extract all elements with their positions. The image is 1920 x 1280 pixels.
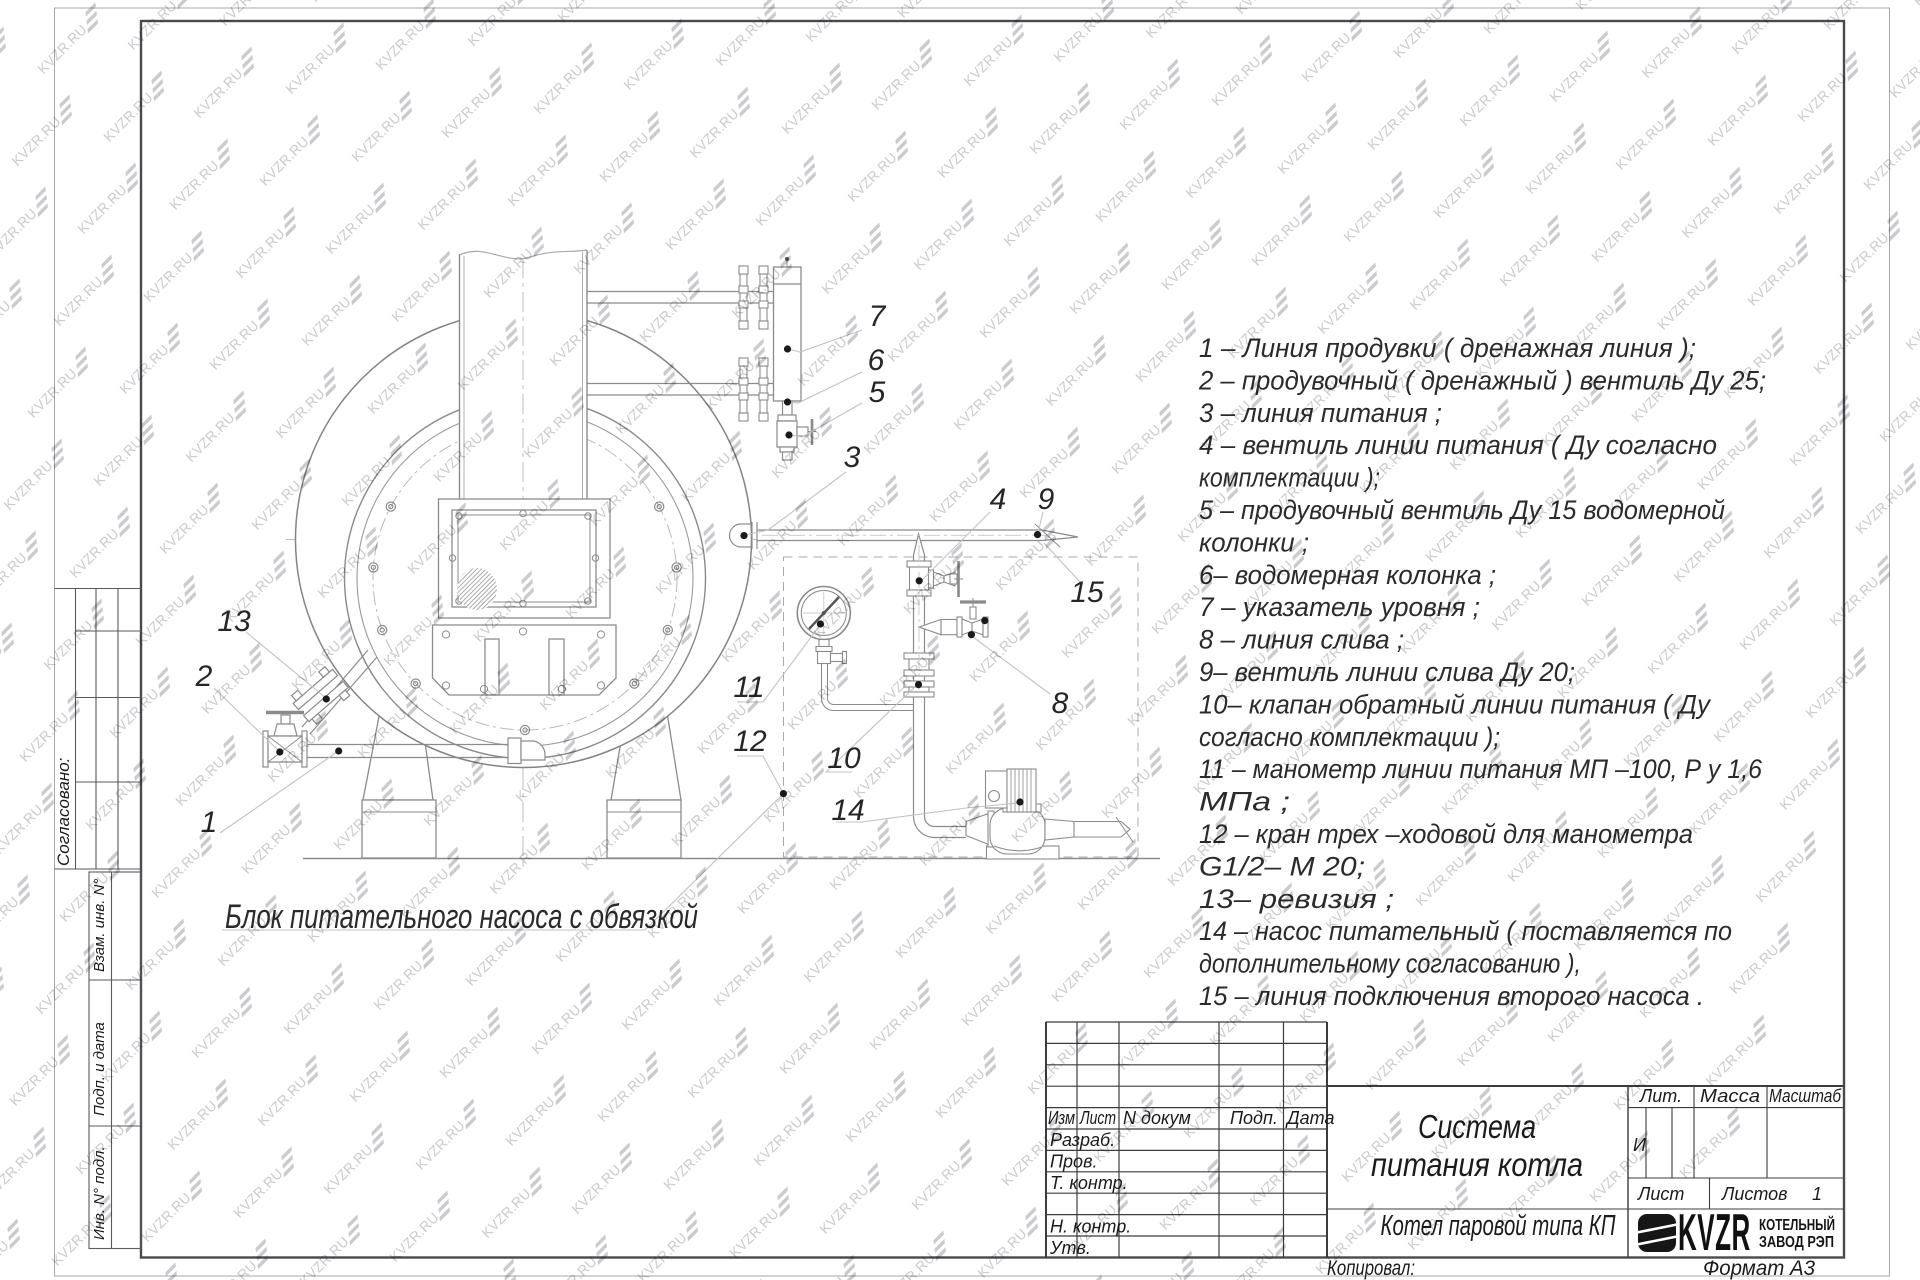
svg-text:KVZR.RU: KVZR.RU: [1902, 297, 1920, 353]
svg-text:KVZR.RU: KVZR.RU: [280, 981, 336, 1037]
svg-text:KVZR.RU: KVZR.RU: [974, 1225, 1030, 1280]
svg-text:Согласовано:: Согласовано:: [54, 757, 73, 866]
svg-text:KVZR.RU: KVZR.RU: [478, 1185, 534, 1241]
svg-text:KVZR.RU: KVZR.RU: [792, 1273, 848, 1280]
svg-text:KVZR.RU: KVZR.RU: [636, 289, 692, 345]
svg-text:KVZR.RU: KVZR.RU: [1158, 237, 1214, 293]
svg-text:KVZR.RU: KVZR.RU: [1082, 513, 1138, 569]
svg-text:KVZR.RU: KVZR.RU: [816, 1181, 872, 1237]
svg-text:KVZR.RU: KVZR.RU: [116, 341, 172, 397]
svg-text:KVZR.RU: KVZR.RU: [882, 1249, 938, 1280]
svg-text:KVZR.RU: KVZR.RU: [1108, 421, 1164, 477]
svg-text:KVZR.RU: KVZR.RU: [504, 153, 560, 209]
svg-text:KVZR.RU: KVZR.RU: [8, 113, 64, 169]
svg-text:KVZR.RU: KVZR.RU: [138, 1189, 194, 1245]
svg-text:KVZR.RU: KVZR.RU: [66, 525, 122, 581]
svg-text:KVZR.RU: KVZR.RU: [1496, 233, 1552, 289]
svg-text:KVZR.RU: KVZR.RU: [0, 0, 24, 9]
svg-text:KVZR.RU: KVZR.RU: [752, 173, 808, 229]
svg-text:KVZR.RU: KVZR.RU: [1760, 505, 1816, 561]
svg-text:KVZR.RU: KVZR.RU: [662, 197, 718, 253]
svg-text:KVZR.RU: KVZR.RU: [190, 65, 246, 121]
svg-text:KVZR.RU: KVZR.RU: [1000, 193, 1056, 249]
svg-text:KVZR.RU: KVZR.RU: [982, 881, 1038, 937]
svg-text:KVZR.RU: KVZR.RU: [412, 1117, 468, 1173]
svg-text:KVZR.RU: KVZR.RU: [926, 469, 982, 525]
svg-text:KVZR.RU: KVZR.RU: [818, 241, 874, 297]
svg-text:KVZR.RU: KVZR.RU: [1810, 321, 1866, 377]
svg-text:KVZR.RU: KVZR.RU: [32, 961, 88, 1017]
svg-text:Копировал:: Копировал:: [1327, 1257, 1415, 1280]
svg-text:KVZR.RU: KVZR.RU: [634, 1229, 690, 1280]
svg-text:KVZR.RU: KVZR.RU: [1572, 0, 1628, 13]
svg-text:KVZR.RU: KVZR.RU: [148, 845, 204, 901]
svg-text:KVZR.RU: KVZR.RU: [172, 753, 228, 809]
svg-text:KVZR.RU: KVZR.RU: [1728, 1, 1784, 57]
svg-text:G1/2– М 20;: G1/2– М 20;: [1199, 851, 1365, 881]
svg-text:Формат А3: Формат А3: [1703, 1257, 1815, 1280]
svg-text:KVZR.RU: KVZR.RU: [1074, 857, 1130, 913]
svg-text:KVZR.RU: KVZR.RU: [206, 317, 262, 373]
svg-text:KVZR.RU: KVZR.RU: [734, 861, 790, 917]
svg-text:8 – линия слива ;: 8 – линия слива ;: [1199, 625, 1404, 655]
svg-text:KVZR.RU: KVZR.RU: [1130, 1269, 1186, 1280]
svg-text:KVZR.RU: KVZR.RU: [800, 929, 856, 985]
svg-text:KVZR.RU: KVZR.RU: [1124, 673, 1180, 729]
svg-text:KVZR.RU: KVZR.RU: [1826, 573, 1882, 629]
svg-text:KVZR.RU: KVZR.RU: [1744, 253, 1800, 309]
svg-text:KVZR.RU: KVZR.RU: [916, 813, 972, 869]
svg-text:KVZR.RU: KVZR.RU: [1638, 25, 1694, 81]
svg-text:KVZR.RU: KVZR.RU: [1390, 5, 1446, 61]
svg-text:питания котла: питания котла: [1371, 1146, 1583, 1183]
svg-text:KVZR.RU: KVZR.RU: [1710, 689, 1766, 745]
svg-text:Масса: Масса: [1700, 1086, 1760, 1106]
svg-text:KVZR.RU: KVZR.RU: [1132, 329, 1188, 385]
svg-text:1 – Линия продувки ( дренажн: 1 – Линия продувки ( дренажная линия );: [1199, 333, 1696, 363]
svg-text:Лист: Лист: [1637, 1184, 1684, 1204]
svg-text:KVZR.RU: KVZR.RU: [282, 41, 338, 97]
svg-text:KVZR.RU: KVZR.RU: [48, 1213, 104, 1269]
svg-text:KVZR.RU: KVZR.RU: [646, 0, 702, 1]
svg-text:KVZR.RU: KVZR.RU: [908, 1157, 964, 1213]
svg-text:KVZR.RU: KVZR.RU: [1794, 69, 1850, 125]
svg-text:KVZR.RU: KVZR.RU: [684, 1045, 740, 1101]
svg-text:Подп.: Подп.: [1230, 1108, 1278, 1128]
svg-text:KVZR.RU: KVZR.RU: [1156, 1177, 1212, 1233]
svg-text:KVZR.RU: KVZR.RU: [1098, 765, 1154, 821]
svg-text:KVZR.RU: KVZR.RU: [1050, 9, 1106, 65]
svg-text:KVZR.RU: KVZR.RU: [1770, 161, 1826, 217]
svg-text:KVZR.RU: KVZR.RU: [0, 893, 22, 949]
svg-text:KVZR.RU: KVZR.RU: [1654, 277, 1710, 333]
svg-text:KVZR.RU: KVZR.RU: [232, 225, 288, 281]
svg-text:ЗАВОД РЭП: ЗАВОД РЭП: [1759, 1234, 1834, 1251]
svg-text:14 – насос питательный ( п: 14 – насос питательный ( поставляется по: [1199, 916, 1732, 946]
svg-text:KVZR.RU: KVZR.RU: [272, 385, 328, 441]
svg-text:KVZR.RU: KVZR.RU: [346, 1049, 402, 1105]
svg-text:Лист: Лист: [1079, 1108, 1116, 1128]
svg-text:KVZR.RU: KVZR.RU: [1364, 97, 1420, 153]
svg-text:KVZR.RU: KVZR.RU: [0, 1237, 12, 1280]
svg-text:KVZR.RU: KVZR.RU: [1736, 597, 1792, 653]
svg-text:KVZR.RU: KVZR.RU: [1140, 925, 1196, 981]
svg-text:KVZR.RU: KVZR.RU: [1820, 0, 1876, 33]
svg-text:KVZR.RU: KVZR.RU: [860, 401, 916, 457]
svg-text:KVZR.RU: KVZR.RU: [1454, 1013, 1510, 1069]
svg-text:KVZR.RU: KVZR.RU: [100, 89, 156, 145]
svg-text:KVZR.RU: KVZR.RU: [1670, 529, 1726, 585]
svg-text:7: 7: [869, 300, 887, 333]
svg-text:15 – линия подключения вто: 15 – линия подключения второго насоса .: [1199, 981, 1704, 1011]
svg-text:KVZR.RU: KVZR.RU: [436, 1025, 492, 1081]
svg-text:KVZR.RU: KVZR.RU: [1362, 1037, 1418, 1093]
svg-text:KVZR.RU: KVZR.RU: [188, 1005, 244, 1061]
svg-text:KVZR.RU: KVZR.RU: [486, 841, 542, 897]
svg-text:KVZR.RU: KVZR.RU: [1852, 481, 1908, 537]
svg-text:6: 6: [868, 344, 885, 377]
svg-text:KVZR.RU: KVZR.RU: [1406, 257, 1462, 313]
svg-text:KVZR.RU: KVZR.RU: [802, 0, 858, 45]
svg-text:KVZR.RU: KVZR.RU: [1786, 413, 1842, 469]
svg-text:KVZR.RU: KVZR.RU: [892, 905, 948, 961]
svg-text:KVZR.RU: KVZR.RU: [726, 1205, 782, 1261]
svg-text:колонки ;: колонки ;: [1199, 527, 1309, 557]
svg-text:KVZR.RU: KVZR.RU: [1026, 101, 1082, 157]
svg-text:Т. контр.: Т. контр.: [1050, 1173, 1128, 1193]
svg-text:KVZR.RU: KVZR.RU: [204, 1257, 260, 1280]
svg-text:KVZR.RU: KVZR.RU: [140, 249, 196, 305]
svg-text:KVZR.RU: KVZR.RU: [778, 81, 834, 137]
svg-text:KVZR.RU: KVZR.RU: [1208, 53, 1264, 109]
svg-text:согласно комплектации );: согласно комплектации );: [1199, 722, 1500, 752]
svg-text:KVZR.RU: KVZR.RU: [306, 0, 362, 5]
svg-text:KVZR.RU: KVZR.RU: [1860, 137, 1916, 193]
svg-text:KVZR.RU: KVZR.RU: [868, 57, 924, 113]
svg-text:KVZR.RU: KVZR.RU: [992, 537, 1048, 593]
svg-text:KVZR.RU: KVZR.RU: [950, 377, 1006, 433]
svg-text:KVZR.RU: KVZR.RU: [1066, 261, 1122, 317]
svg-text:KVZR.RU: KVZR.RU: [1148, 581, 1204, 637]
svg-text:KVZR.RU: KVZR.RU: [1456, 73, 1512, 129]
svg-text:KVZR.RU: KVZR.RU: [1522, 141, 1578, 197]
svg-text:KVZR.RU: KVZR.RU: [1298, 29, 1354, 85]
svg-text:KVZR.RU: KVZR.RU: [40, 617, 96, 673]
svg-text:12: 12: [733, 725, 767, 758]
svg-text:KVZR.RU: KVZR.RU: [0, 1145, 38, 1201]
svg-text:KVZR.RU: KVZR.RU: [164, 1097, 220, 1153]
svg-text:KVZR.RU: KVZR.RU: [702, 357, 758, 413]
svg-text:KVZR.RU: KVZR.RU: [844, 149, 900, 205]
svg-text:KVZR.RU: KVZR.RU: [1802, 665, 1858, 721]
svg-text:KVZR.RU: KVZR.RU: [1702, 1033, 1758, 1089]
svg-text:KVZR.RU: KVZR.RU: [934, 125, 990, 181]
svg-text:КОТЕЛЬНЫЙ: КОТЕЛЬНЫЙ: [1759, 1216, 1835, 1234]
svg-text:KVZR.RU: KVZR.RU: [894, 0, 950, 21]
svg-text:KVZR.RU: KVZR.RU: [1612, 117, 1668, 173]
svg-text:KVZR.RU: KVZR.RU: [372, 17, 428, 73]
svg-text:KVZR.RU: KVZR.RU: [1644, 621, 1700, 677]
svg-text:KVZR.RU: KVZR.RU: [1480, 0, 1536, 37]
svg-text:KVZR.RU: KVZR.RU: [826, 837, 882, 893]
svg-text:KVZR.RU: KVZR.RU: [1314, 281, 1370, 337]
svg-text:KVZR.RU: KVZR.RU: [1246, 1153, 1302, 1209]
svg-text:KVZR.RU: KVZR.RU: [686, 105, 742, 161]
svg-text:KVZR.RU: KVZR.RU: [0, 205, 40, 261]
svg-text:KVZR.RU: KVZR.RU: [1488, 577, 1544, 633]
svg-text:KVZR.RU: KVZR.RU: [0, 457, 56, 513]
svg-text:KVZR.RU: KVZR.RU: [16, 709, 72, 765]
svg-text:KVZR.RU: KVZR.RU: [502, 1093, 558, 1149]
svg-text:KVZR.RU: KVZR.RU: [570, 221, 626, 277]
svg-text:KVZR.RU: KVZR.RU: [794, 333, 850, 389]
svg-text:KVZR.RU: KVZR.RU: [388, 269, 444, 325]
svg-text:KVZR.RU: KVZR.RU: [156, 501, 212, 557]
svg-text:KVZR.RU: KVZR.RU: [1092, 169, 1148, 225]
svg-text:Масштаб: Масштаб: [1769, 1086, 1842, 1106]
svg-text:KVZR.RU: KVZR.RU: [322, 201, 378, 257]
svg-text:KVZR.RU: KVZR.RU: [1430, 165, 1486, 221]
svg-text:KVZR.RU: KVZR.RU: [884, 309, 940, 365]
svg-text:KVZR.RU: KVZR.RU: [1340, 189, 1396, 245]
svg-text:KVZR.RU: KVZR.RU: [866, 997, 922, 1053]
svg-text:Дата: Дата: [1285, 1108, 1335, 1128]
svg-text:KVZR.RU: KVZR.RU: [1024, 1041, 1080, 1097]
svg-text:KVZR.RU: KVZR.RU: [256, 133, 312, 189]
svg-text:KVZR.RU: KVZR.RU: [1578, 553, 1634, 609]
svg-text:KVZR.RU: KVZR.RU: [1182, 145, 1238, 201]
svg-text:KVZR.RU: KVZR.RU: [464, 0, 520, 49]
svg-text:KVZR.RU: KVZR.RU: [90, 433, 146, 489]
svg-text:KVZR.RU: KVZR.RU: [106, 685, 162, 741]
svg-text:KVZR.RU: KVZR.RU: [842, 1089, 898, 1145]
svg-text:KVZR.RU: KVZR.RU: [710, 953, 766, 1009]
svg-text:KVZR.RU: KVZR.RU: [1726, 941, 1782, 997]
svg-text:KVZR.RU: KVZR.RU: [1412, 853, 1468, 909]
svg-text:KVZR.RU: KVZR.RU: [568, 1161, 624, 1217]
svg-text:2: 2: [195, 660, 213, 693]
svg-text:KVZR.RU: KVZR.RU: [320, 1141, 376, 1197]
svg-text:KVZR.RU: KVZR.RU: [932, 1065, 988, 1121]
svg-text:KVZR.RU: KVZR.RU: [438, 85, 494, 141]
svg-text:KVZR.RU: KVZR.RU: [238, 821, 294, 877]
svg-text:KVZR.RU: KVZR.RU: [34, 21, 90, 77]
svg-text:5: 5: [869, 376, 886, 409]
svg-text:KVZR.RU: KVZR.RU: [0, 801, 46, 857]
svg-text:KVZR.RU: KVZR.RU: [182, 409, 238, 465]
svg-text:KVZR.RU: KVZR.RU: [1752, 849, 1808, 905]
svg-text:KVZR: KVZR: [1678, 1203, 1751, 1261]
svg-text:KVZR.RU: KVZR.RU: [1588, 209, 1644, 265]
svg-text:KVZR.RU: KVZR.RU: [1704, 93, 1760, 149]
svg-text:KVZR.RU: KVZR.RU: [122, 937, 178, 993]
svg-text:KVZR.RU: KVZR.RU: [216, 0, 272, 29]
svg-text:KVZR.RU: KVZR.RU: [1776, 757, 1832, 813]
svg-text:KVZR.RU: KVZR.RU: [958, 973, 1014, 1029]
svg-text:Лит.: Лит.: [1639, 1086, 1682, 1106]
svg-text:1: 1: [1812, 1184, 1822, 1204]
svg-text:KVZR.RU: KVZR.RU: [1048, 949, 1104, 1005]
svg-text:KVZR.RU: KVZR.RU: [910, 217, 966, 273]
svg-text:KVZR.RU: KVZR.RU: [6, 1053, 62, 1109]
svg-text:KVZR.RU: KVZR.RU: [1042, 353, 1098, 409]
svg-text:KVZR.RU: KVZR.RU: [760, 769, 816, 825]
svg-text:KVZR.RU: KVZR.RU: [530, 61, 586, 117]
svg-text:15: 15: [1070, 576, 1104, 609]
svg-text:10: 10: [827, 742, 861, 775]
svg-text:KVZR.RU: KVZR.RU: [976, 285, 1032, 341]
svg-text:KVZR.RU: KVZR.RU: [1876, 389, 1920, 445]
svg-text:дополнительному согласованию: дополнительному согласованию ),: [1199, 949, 1581, 979]
svg-text:KVZR.RU: KVZR.RU: [0, 549, 30, 605]
svg-text:KVZR.RU: KVZR.RU: [1546, 49, 1602, 105]
svg-text:KVZR.RU: KVZR.RU: [1058, 605, 1114, 661]
svg-text:KVZR.RU: KVZR.RU: [960, 33, 1016, 89]
svg-text:KVZR.RU: KVZR.RU: [1116, 77, 1172, 133]
svg-text:KVZR.RU: KVZR.RU: [1686, 781, 1742, 837]
svg-text:KVZR.RU: KVZR.RU: [750, 1113, 806, 1169]
svg-text:KVZR.RU: KVZR.RU: [50, 273, 106, 329]
svg-text:KVZR.RU: KVZR.RU: [784, 677, 840, 733]
svg-text:Блок питательного насоса с: Блок питательного насоса с обвязкой: [225, 898, 698, 936]
svg-text:KVZR.RU: KVZR.RU: [620, 37, 676, 93]
svg-text:KVZR.RU: KVZR.RU: [24, 365, 80, 421]
svg-text:KVZR.RU: KVZR.RU: [596, 129, 652, 185]
svg-text:KVZR.RU: KVZR.RU: [1676, 1125, 1732, 1181]
svg-text:KVZR.RU: KVZR.RU: [230, 1165, 286, 1221]
svg-text:KVZR.RU: KVZR.RU: [254, 1073, 310, 1129]
svg-text:KVZR.RU: KVZR.RU: [1910, 0, 1920, 9]
svg-text:KVZR.RU: KVZR.RU: [660, 1137, 716, 1193]
svg-text:KVZR.RU: KVZR.RU: [74, 181, 130, 237]
svg-text:KVZR.RU: KVZR.RU: [528, 1001, 584, 1057]
svg-text:KVZR.RU: KVZR.RU: [1274, 121, 1330, 177]
svg-text:KVZR.RU: KVZR.RU: [370, 957, 426, 1013]
svg-text:KVZR.RU: KVZR.RU: [348, 109, 404, 165]
svg-text:KVZR.RU: KVZR.RU: [82, 777, 138, 833]
svg-text:KVZR.RU: KVZR.RU: [298, 293, 354, 349]
svg-text:Листов: Листов: [1721, 1184, 1788, 1204]
svg-text:KVZR.RU: KVZR.RU: [1222, 1245, 1278, 1280]
svg-text:3: 3: [844, 441, 861, 474]
svg-text:KVZR.RU: KVZR.RU: [942, 721, 998, 777]
svg-text:KVZR.RU: KVZR.RU: [618, 977, 674, 1033]
svg-text:МПа ;: МПа ;: [1199, 787, 1290, 817]
svg-text:KVZR.RU: KVZR.RU: [462, 933, 518, 989]
svg-text:KVZR.RU: KVZR.RU: [1678, 185, 1734, 241]
svg-text:KVZR.RU: KVZR.RU: [1586, 1149, 1642, 1205]
svg-text:KVZR.RU: KVZR.RU: [1886, 45, 1920, 101]
svg-text:10– клапан обратный линии: 10– клапан обратный линии питания ( Ду: [1199, 689, 1711, 719]
svg-text:KVZR.RU: KVZR.RU: [776, 1021, 832, 1077]
svg-text:KVZR.RU: KVZR.RU: [414, 177, 470, 233]
svg-text:KVZR.RU: KVZR.RU: [1248, 213, 1304, 269]
svg-text:4: 4: [990, 483, 1007, 516]
svg-text:KVZR.RU: KVZR.RU: [166, 157, 222, 213]
svg-text:KVZR.RU: KVZR.RU: [594, 1069, 650, 1125]
